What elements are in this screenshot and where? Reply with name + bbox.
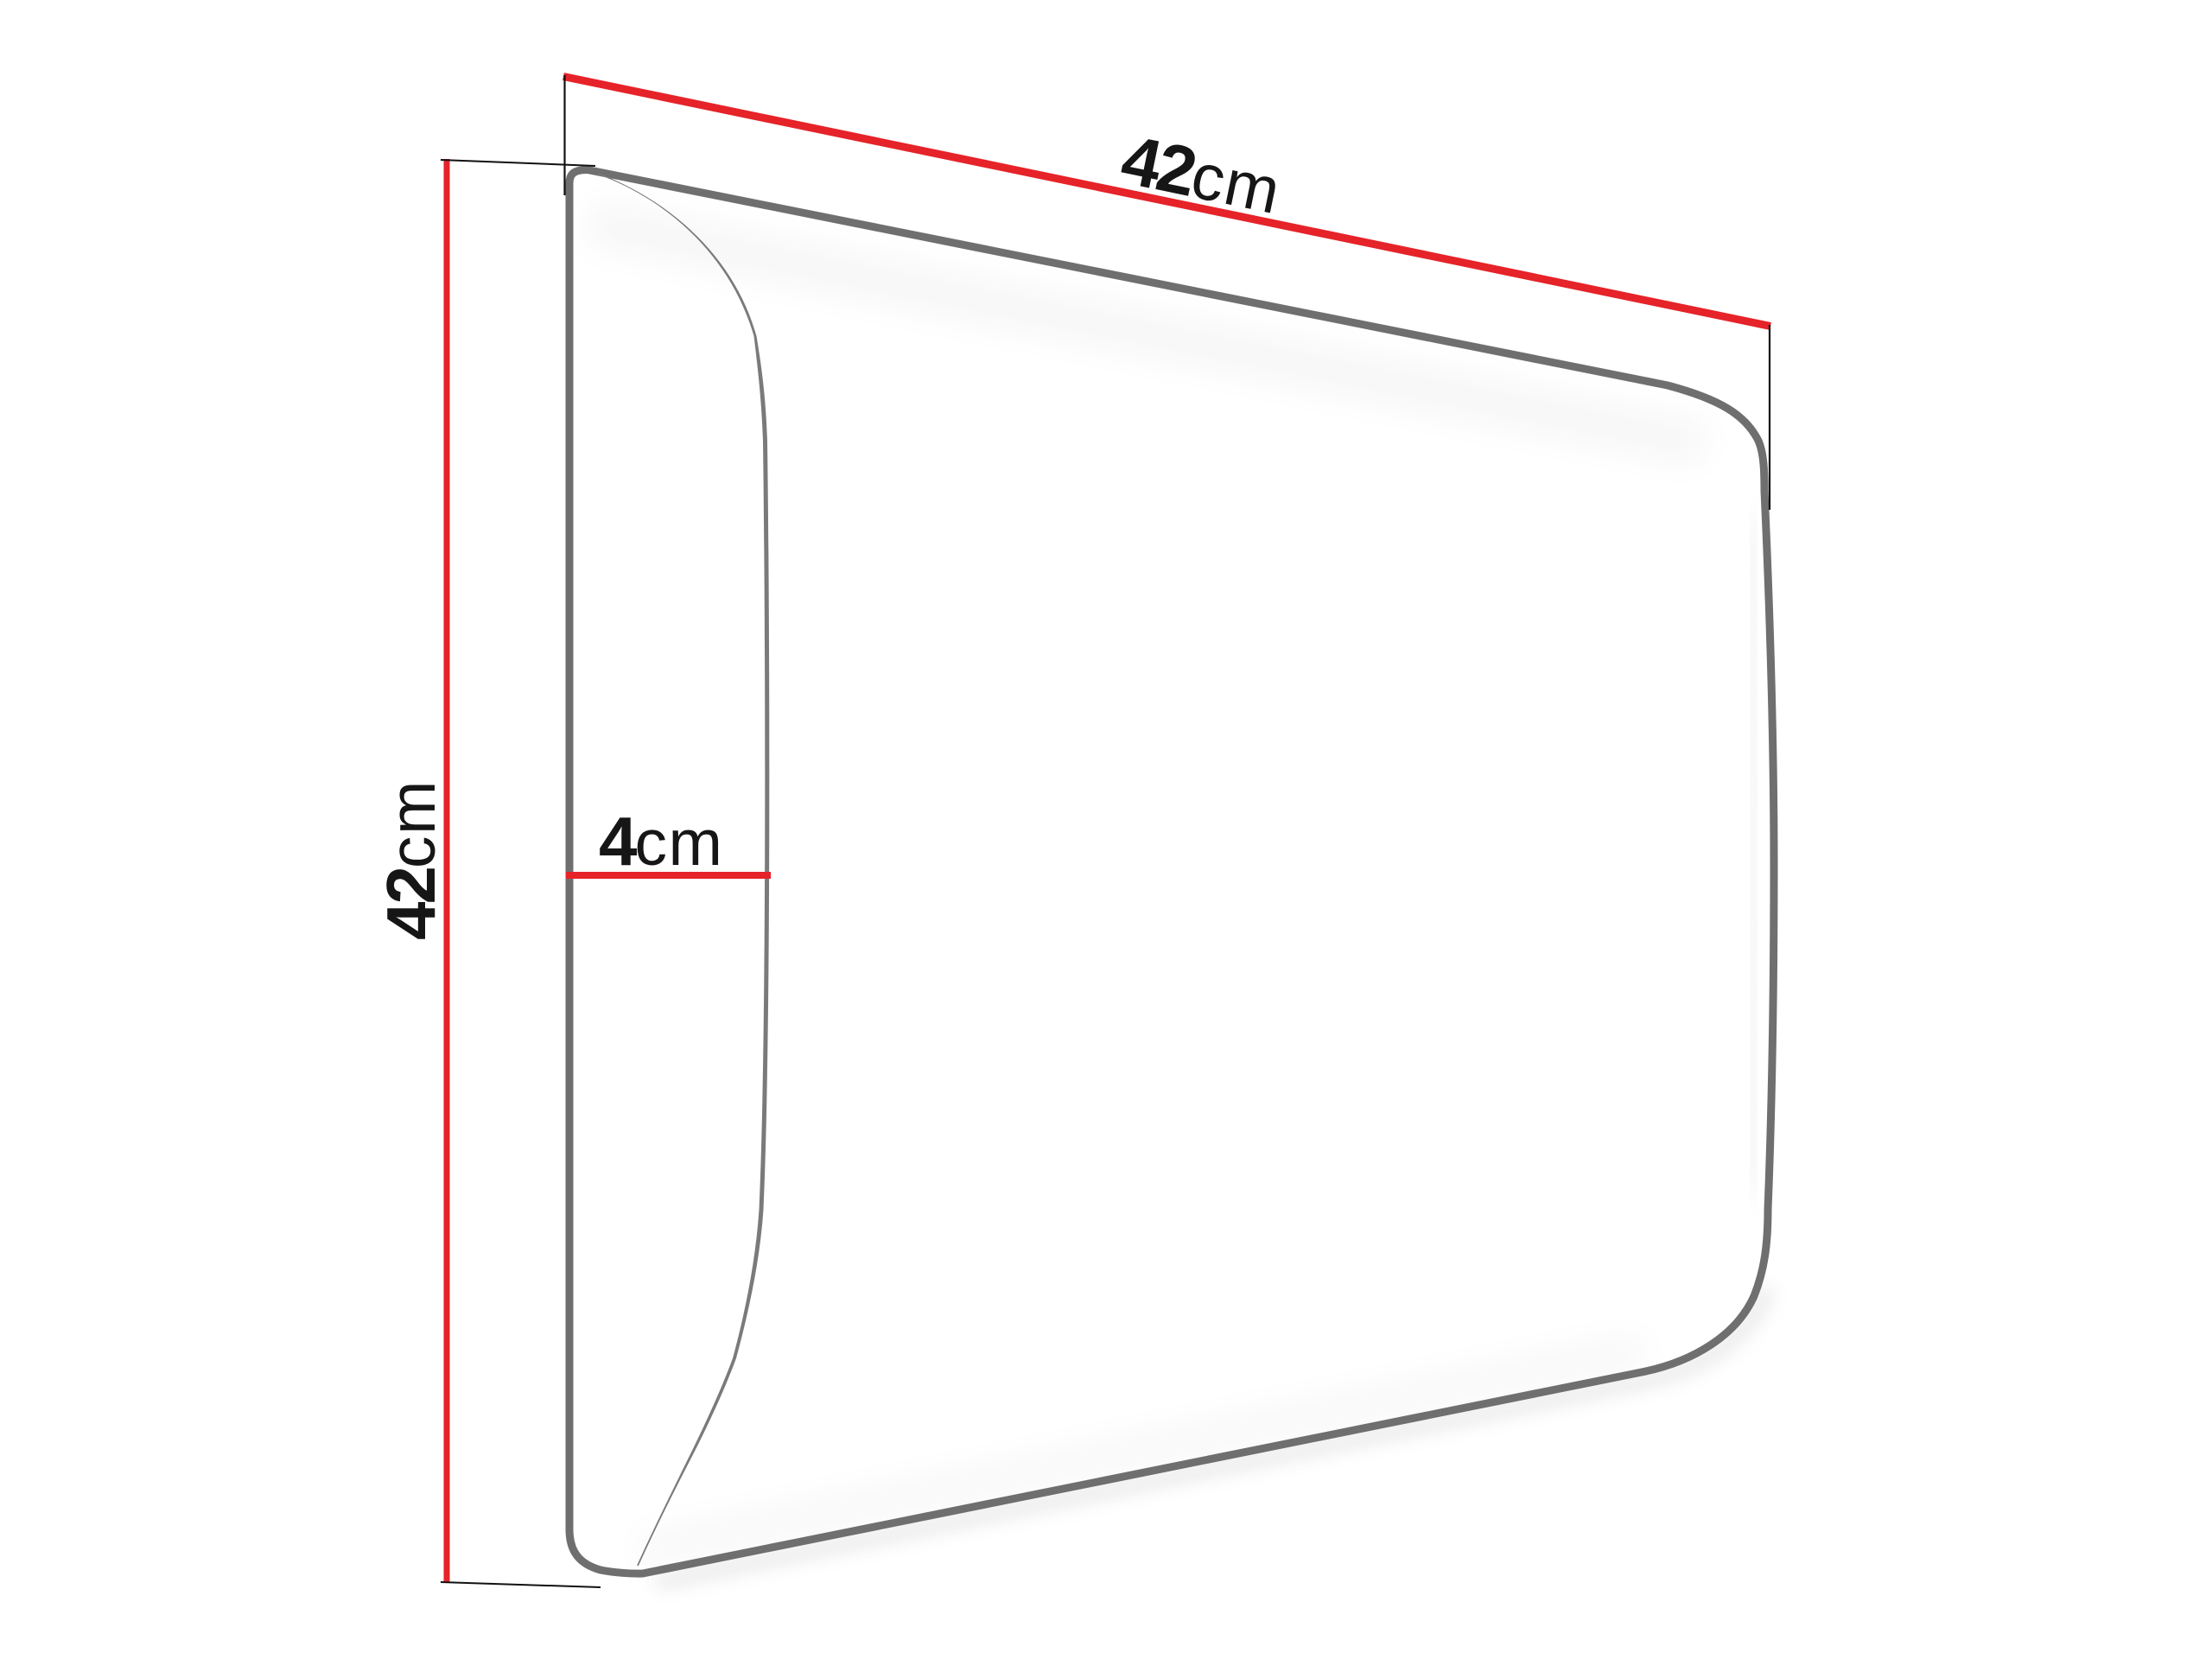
svg-text:4cm: 4cm [599, 803, 723, 880]
svg-text:42cm: 42cm [372, 779, 449, 940]
svg-text:42cm: 42cm [1116, 120, 1288, 228]
